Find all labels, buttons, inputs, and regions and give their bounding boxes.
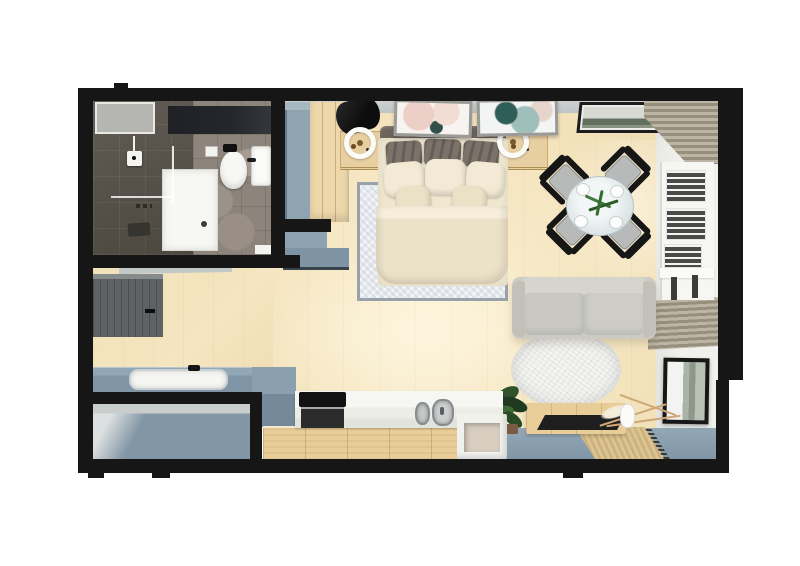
pampas-stems	[598, 386, 690, 434]
dark-wardrobe	[93, 274, 163, 337]
wall-tab	[563, 473, 583, 478]
oven-front	[301, 407, 344, 428]
plant-pot	[506, 424, 518, 434]
stepped-counter-upper	[283, 230, 327, 250]
kitchen-faucet	[440, 407, 444, 415]
kitchen-sink	[414, 398, 456, 428]
floor-plan	[0, 0, 800, 566]
lamp-ring-left	[344, 127, 376, 159]
sofa-cushion	[584, 293, 643, 335]
entry-hall-floor	[93, 403, 250, 459]
shower-control-panel	[127, 151, 142, 166]
open-shelf-unit	[457, 414, 507, 459]
toilet	[220, 151, 247, 189]
toilet-paper-holder	[205, 146, 218, 157]
shower-tray	[162, 169, 218, 251]
sofa-armrest-right	[643, 281, 656, 337]
window-louver-shutter	[666, 208, 706, 240]
sofa-armrest-left	[512, 281, 525, 337]
artwork-pink-abstract	[394, 99, 473, 138]
wall-entry-right	[250, 392, 262, 459]
bathroom-sink	[251, 146, 271, 186]
utility-basin	[129, 369, 228, 390]
table-plant-centerpiece	[582, 188, 620, 220]
shower-fittings	[136, 204, 152, 208]
page-background	[0, 0, 800, 566]
wall-tab	[152, 473, 170, 478]
window-mullion	[692, 275, 698, 298]
wall-tab	[114, 83, 128, 88]
utility-faucet	[188, 365, 200, 371]
wall-tab	[88, 473, 104, 478]
sofa	[512, 277, 656, 339]
sofa-cushion	[525, 293, 584, 335]
artwork-teal-abstract	[477, 98, 559, 136]
vent-slat-panel	[648, 297, 718, 350]
blue-cabinet	[284, 102, 310, 222]
wall-outer-bottom	[78, 459, 729, 473]
wall-bathroom-bottom	[78, 255, 300, 268]
bed-duvet	[376, 206, 508, 284]
bathroom-sink-faucet	[247, 158, 256, 162]
bathroom-vanity-counter	[168, 106, 271, 134]
sink-basin-small	[415, 402, 430, 425]
pampas-vase	[620, 404, 635, 428]
window-louver-shutter	[664, 244, 702, 268]
wall-bathroom-right	[271, 88, 285, 255]
wall-outer-top	[78, 88, 743, 101]
wall-outer-right-lower	[716, 380, 729, 473]
window-louver-shutter	[666, 170, 706, 202]
cooktop	[299, 392, 346, 407]
wall-closet-stub	[283, 219, 331, 232]
bath-mat	[128, 222, 151, 237]
shower-glass-panel-side	[111, 196, 174, 198]
shower-drain	[201, 221, 207, 227]
sofa-back	[520, 277, 648, 294]
shower-rail	[133, 136, 135, 152]
toilet-flush-plate	[223, 144, 237, 152]
bathroom-wall-shelf	[95, 102, 155, 134]
wall-entry-top	[93, 392, 262, 404]
window-sill	[660, 268, 714, 278]
window-mullion	[671, 277, 677, 300]
wall-outer-right-upper	[718, 88, 743, 380]
wall-outer-left	[78, 88, 93, 473]
